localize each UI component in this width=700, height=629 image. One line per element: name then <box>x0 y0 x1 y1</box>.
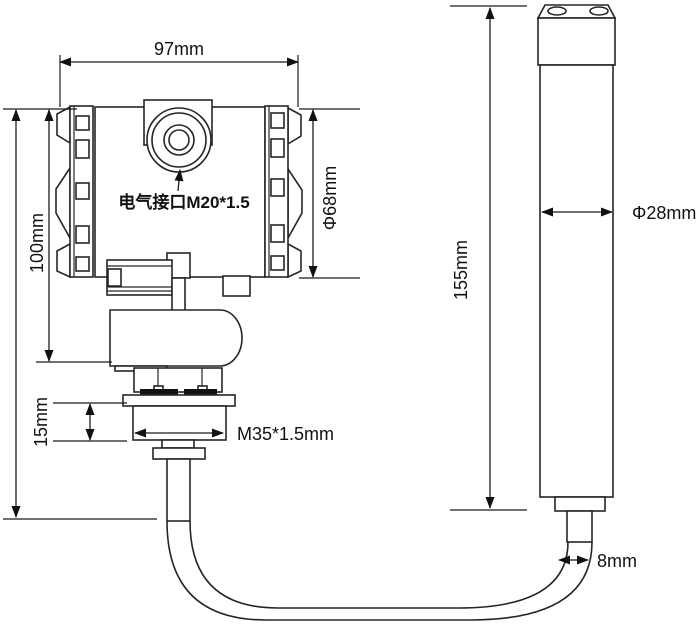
label-cable-diameter: 8mm <box>597 551 637 571</box>
probe-top-hole-left <box>548 7 566 15</box>
probe-body <box>540 65 613 497</box>
label-probe-diameter: Φ28mm <box>632 203 696 223</box>
probe-top-hole-right <box>590 7 608 15</box>
probe-collar <box>555 497 605 511</box>
electrical-port-circles <box>147 108 211 172</box>
gasket-left <box>140 389 178 395</box>
label-housing-width: 97mm <box>154 39 204 59</box>
label-thread-spec: M35*1.5mm <box>237 424 334 444</box>
label-housing-height: 100mm <box>27 213 47 273</box>
housing-right-cap <box>265 106 302 277</box>
nut-step <box>162 440 194 448</box>
transmitter-housing <box>56 100 302 521</box>
dimension-68mm: Φ68mm <box>299 109 360 278</box>
dimension-15mm: 15mm <box>31 397 127 447</box>
tube-collar <box>153 448 205 459</box>
probe-neck <box>567 511 592 542</box>
connection-cable <box>167 521 592 620</box>
mounting-flange <box>123 395 235 406</box>
dimension-drawing-canvas: 97mm 100mm 电气接口M20*1.5 Φ68mm 15mm M35*1.… <box>0 0 700 629</box>
label-housing-diameter: Φ68mm <box>320 166 340 230</box>
label-electrical-port: 电气接口M20*1.5 <box>118 192 249 212</box>
housing-left-cap <box>56 106 93 277</box>
coupling-body <box>110 310 242 366</box>
label-probe-height: 155mm <box>451 240 471 300</box>
dimension-97mm: 97mm <box>60 39 298 107</box>
thread-nut <box>133 406 226 440</box>
down-tube <box>167 459 190 521</box>
gasket-right <box>184 389 217 395</box>
upper-hex-section <box>134 368 222 395</box>
label-thread-height: 15mm <box>31 397 51 447</box>
level-probe <box>538 5 615 542</box>
transmitter-dimension-diagram: 97mm 100mm 电气接口M20*1.5 Φ68mm 15mm M35*1.… <box>0 0 700 629</box>
dimension-8mm: 8mm <box>559 551 637 571</box>
dimension-155mm: 155mm <box>450 6 527 510</box>
probe-cap <box>538 18 615 65</box>
